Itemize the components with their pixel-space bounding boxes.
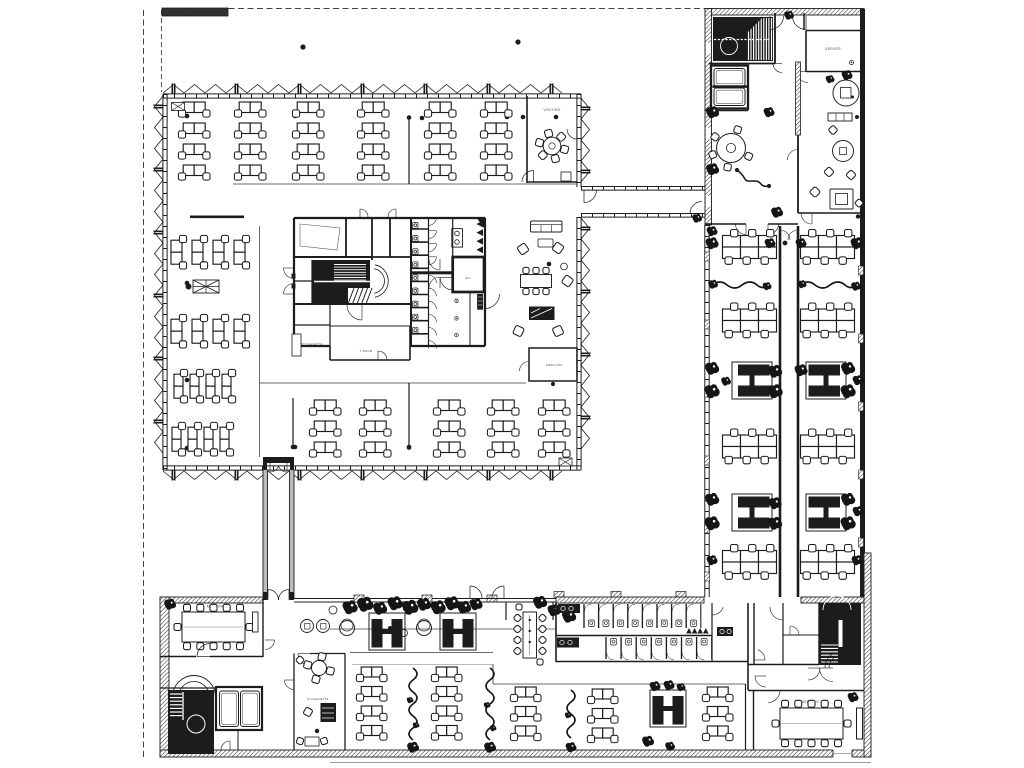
svg-text:T ROOM: T ROOM [360,349,373,353]
svg-text:SERVER: SERVER [825,47,841,51]
svg-text:KITCHENETTE: KITCHENETTE [307,697,328,701]
svg-text:KITCHENETTE: KITCHENETTE [301,342,322,346]
svg-text:MEDIA RM: MEDIA RM [546,363,562,367]
svg-text:WC: WC [465,276,471,280]
svg-text:VISITING: VISITING [543,108,560,112]
